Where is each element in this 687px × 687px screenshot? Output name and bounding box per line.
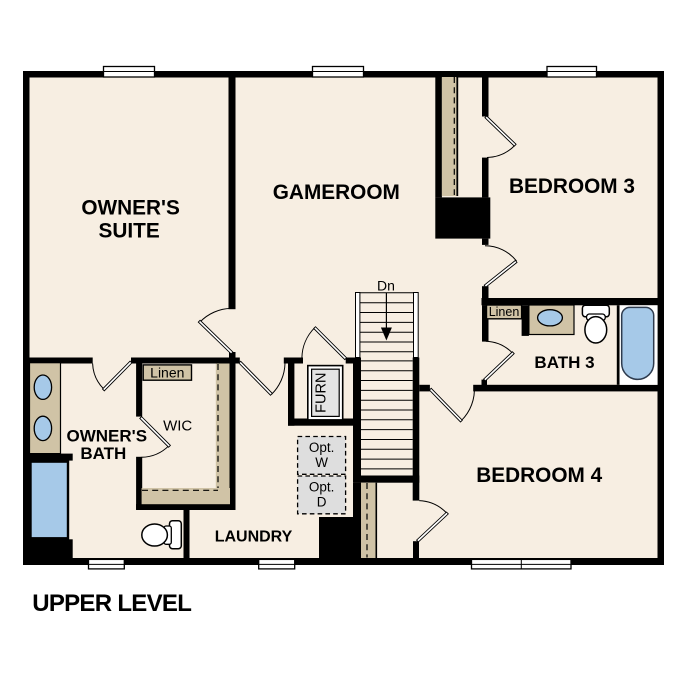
svg-text:BATH: BATH bbox=[80, 444, 126, 463]
svg-text:W: W bbox=[315, 455, 328, 470]
svg-text:Linen: Linen bbox=[489, 305, 520, 319]
svg-text:OWNER'S: OWNER'S bbox=[81, 197, 180, 220]
svg-text:Dn: Dn bbox=[377, 278, 395, 294]
svg-text:BEDROOM 3: BEDROOM 3 bbox=[509, 175, 635, 198]
svg-text:LAUNDRY: LAUNDRY bbox=[215, 529, 293, 546]
svg-text:UPPER LEVEL: UPPER LEVEL bbox=[32, 590, 191, 617]
svg-text:GAMEROOM: GAMEROOM bbox=[273, 181, 400, 204]
svg-text:BEDROOM 4: BEDROOM 4 bbox=[476, 464, 602, 487]
svg-text:WIC: WIC bbox=[163, 417, 192, 434]
svg-text:D: D bbox=[317, 494, 327, 509]
svg-text:OWNER'S: OWNER'S bbox=[67, 426, 148, 445]
svg-text:Opt.: Opt. bbox=[309, 479, 335, 494]
svg-text:SUITE: SUITE bbox=[98, 220, 159, 243]
svg-text:BATH 3: BATH 3 bbox=[534, 353, 594, 372]
svg-text:Opt.: Opt. bbox=[309, 440, 335, 455]
svg-text:FURN: FURN bbox=[314, 373, 330, 413]
svg-text:Linen: Linen bbox=[150, 365, 184, 381]
